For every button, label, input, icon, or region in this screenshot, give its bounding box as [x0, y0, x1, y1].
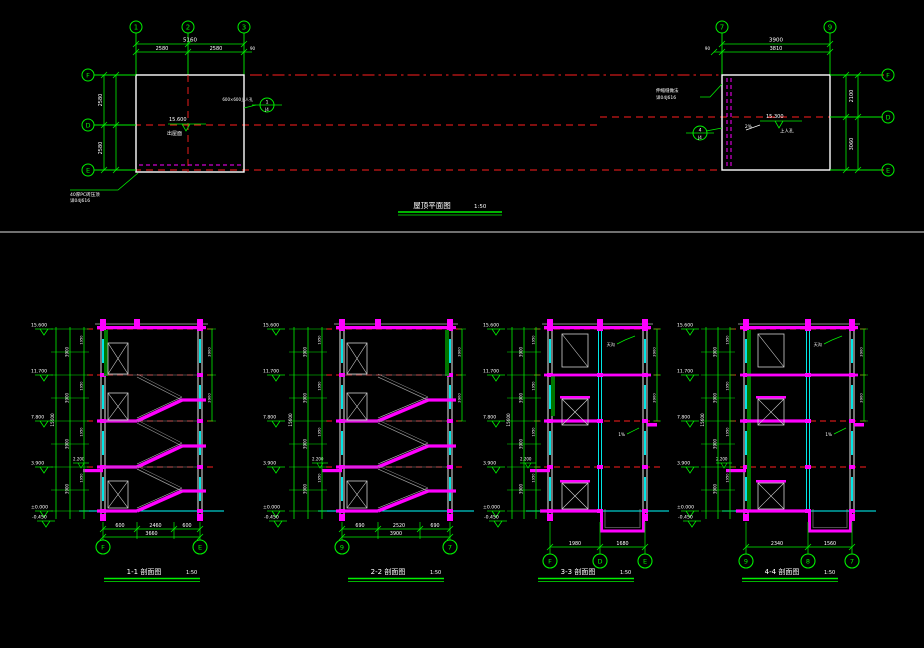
far-flight [137, 423, 182, 446]
elevation-value: 11.700 [483, 369, 499, 375]
dim-text: 2460 [149, 523, 161, 529]
grid-bubble-label: 3 [242, 24, 246, 32]
hatched-wall [445, 330, 449, 376]
elevation-value: ±0.000 [263, 505, 280, 511]
elevation-value: -0.450 [484, 515, 499, 521]
parapet-stub [642, 319, 648, 326]
far-flight [378, 377, 428, 400]
elevation-value: ±0.000 [677, 505, 694, 511]
level-value: 15.600 [169, 117, 187, 123]
dim-text: 3900 [65, 483, 70, 494]
level-value: 2.200 [520, 457, 532, 462]
far-flight [137, 466, 182, 488]
dim-text: 1950 [80, 473, 84, 483]
beam-section [849, 465, 855, 469]
dim-text: 2580 [98, 94, 104, 107]
far-flight [378, 423, 428, 446]
level-flag-triangle [775, 121, 783, 128]
detail-sheet: J4 [697, 135, 702, 140]
dim-text: 3900 [303, 392, 308, 403]
stair-nosing [378, 488, 428, 508]
dim-text: 90 [250, 46, 256, 51]
grid-bubble-label: 7 [720, 24, 724, 32]
dim-text: 2580 [156, 46, 169, 52]
level-flag-triangle [492, 329, 500, 335]
floor-slab [740, 374, 858, 377]
elevation-value: 7.800 [483, 415, 496, 421]
stair-nosing [378, 443, 428, 464]
grid-bubble-label: D [597, 557, 602, 565]
dim-text: 1560 [824, 541, 836, 547]
dim-text: 1950 [726, 381, 730, 391]
dim-text: 3900 [207, 393, 212, 403]
dim-text: 3900 [519, 483, 524, 494]
ledge [854, 423, 864, 427]
leader-note: 1% [825, 432, 832, 437]
detail-note: 600×600上人孔 [222, 96, 253, 102]
level-flag-triangle [40, 467, 48, 473]
dim-text: 1950 [318, 335, 322, 345]
dim-text: 3900 [519, 346, 524, 357]
dim-text: 1950 [726, 473, 730, 483]
leader-line [706, 128, 722, 131]
dim-text: 3900 [303, 346, 308, 357]
leader-line [700, 84, 722, 97]
stair-flight [378, 491, 428, 511]
door-header [560, 480, 590, 483]
dim-text: 1950 [318, 427, 322, 437]
level-flag-triangle [492, 375, 500, 381]
stair-landing [426, 444, 456, 447]
dim-text: 3900 [390, 531, 402, 537]
grid-bubble-label: 1 [134, 24, 138, 32]
far-flight [137, 374, 182, 397]
parapet-stub [339, 319, 345, 326]
stair-landing [426, 489, 456, 492]
drawing-title: 屋顶平面图 [413, 201, 451, 210]
grid-bubble-label: E [886, 167, 890, 175]
stair-nosing [137, 397, 182, 418]
dim-text: 15600 [288, 413, 293, 427]
far-flight [378, 466, 428, 488]
detail-number: 1 [266, 100, 269, 106]
leader-note: 详04J616 [656, 94, 676, 101]
parapet-stub [134, 319, 140, 326]
stair-nosing [137, 443, 182, 464]
dim-text: 5160 [183, 38, 197, 44]
dim-text: 1950 [532, 427, 536, 437]
dim-text: 3900 [519, 392, 524, 403]
far-flight [137, 469, 182, 491]
level-flag-triangle [272, 421, 280, 427]
elevation-value: 7.800 [31, 415, 44, 421]
level-flag-triangle [40, 421, 48, 427]
drawing-scale: 1:50 [474, 204, 487, 210]
grid-bubble-label: F [101, 543, 105, 551]
section-scale: 1:50 [620, 570, 631, 576]
section-title: 4-4 剖面图 [765, 567, 800, 576]
level-value: 2.200 [73, 457, 85, 462]
far-flight [378, 374, 428, 397]
level-flag-triangle [492, 421, 500, 427]
dim-text: 3900 [713, 483, 718, 494]
level-flag-triangle [688, 521, 696, 527]
wall-base [100, 514, 106, 521]
dim-text: 2340 [771, 541, 783, 547]
section-scale: 1:50 [186, 570, 197, 576]
beam-section [805, 327, 811, 331]
beam-section [642, 465, 648, 469]
level-flag-triangle [686, 467, 694, 473]
level-flag-triangle [40, 375, 48, 381]
wall-base [547, 514, 553, 521]
dim-text: 2100 [849, 90, 855, 103]
dim-text: 3900 [519, 438, 524, 449]
stair-flight [378, 446, 428, 467]
dim-text: 3900 [859, 393, 864, 403]
dim-text: 3900 [65, 392, 70, 403]
elevation-value: 7.800 [263, 415, 276, 421]
dim-text: 1950 [318, 381, 322, 391]
dim-text: 3900 [769, 38, 783, 44]
door-header [756, 480, 786, 483]
elevation-value: 3.900 [31, 461, 44, 467]
far-flight [378, 469, 428, 491]
parapet-stub [447, 319, 453, 326]
grid-bubble-label: 9 [828, 24, 832, 32]
dim-text: 600 [182, 523, 191, 529]
roof-plan: 1 2 3 5160 2580 2580 90 [70, 21, 894, 215]
grid-bubble-label: 9 [340, 543, 344, 551]
leader-note: 1% [618, 432, 625, 437]
stair-landing [180, 398, 206, 401]
dim-text: 1950 [532, 335, 536, 345]
dim-text: 1950 [80, 427, 84, 437]
leader-note: 详04J616 [70, 197, 90, 204]
window-swing [562, 334, 588, 367]
stair-sections: 2.20039003900390039001950195019501950156… [31, 319, 876, 582]
plan-title: 屋顶平面图 1:50 [398, 201, 502, 215]
dim-text: 1950 [532, 473, 536, 483]
level-flag-triangle [274, 521, 282, 527]
roof-plan-right: 7 9 3900 3810 90 F D E [656, 21, 894, 176]
far-flight [137, 420, 182, 443]
dim-text: 3900 [457, 347, 462, 357]
stair-flight [137, 446, 182, 467]
dim-text: 15600 [700, 413, 705, 427]
elevation-value: -0.450 [32, 515, 47, 521]
beam-section [547, 465, 553, 469]
plan-wall-outline [136, 75, 244, 172]
elevation-value: 11.700 [263, 369, 279, 375]
beam-section [597, 465, 603, 469]
leader-line [824, 336, 842, 344]
detail-sheet: J4 [264, 107, 269, 112]
dim-text: 1950 [532, 381, 536, 391]
grid-bubble-label: E [198, 543, 202, 551]
dim-text: 1950 [318, 473, 322, 483]
pit-inner [605, 509, 640, 528]
parapet-stub [805, 319, 811, 326]
level-flag-triangle [272, 375, 280, 381]
roof-slab [97, 326, 206, 329]
dim-text: 3900 [859, 347, 864, 357]
level-flag-triangle [494, 521, 502, 527]
parapet-stub [849, 319, 855, 326]
dim-text: 3900 [65, 346, 70, 357]
wall-base [339, 514, 345, 521]
beam-section [849, 419, 855, 423]
dim-text: 3900 [207, 347, 212, 357]
grid-bubble-label: 7 [448, 543, 452, 551]
level-flag-triangle [686, 329, 694, 335]
dim-text: 3660 [145, 531, 157, 537]
grid-bubble-label: 8 [806, 557, 810, 565]
dim-text: 2580 [98, 142, 104, 155]
dim-text: 90 [705, 46, 711, 51]
beam-section [597, 327, 603, 331]
parapet-stub [547, 319, 553, 326]
elevation-value: 11.700 [31, 369, 47, 375]
leader-note: 伸缩缝做法 [656, 87, 679, 94]
level-flag-triangle [492, 467, 500, 473]
dim-text: 3900 [652, 347, 657, 357]
grid-bubble-label: 9 [744, 557, 748, 565]
beam-section [642, 419, 648, 423]
elevation-value: ±0.000 [31, 505, 48, 511]
stair-nosing [378, 397, 428, 418]
hatched-wall [551, 376, 555, 416]
elevation-value: 15.600 [677, 323, 693, 329]
cad-svg: 1 2 3 5160 2580 2580 90 [0, 0, 924, 648]
detail-number: 4 [699, 128, 702, 134]
wall-base [197, 514, 203, 521]
leader-line [70, 173, 138, 190]
parapet-stub [375, 319, 381, 326]
entry-canopy [530, 469, 550, 472]
elevation-value: -0.450 [678, 515, 693, 521]
section-title: 3-3 剖面图 [561, 567, 596, 576]
floor-slab [740, 419, 808, 422]
section-scale: 1:50 [824, 570, 835, 576]
door-header [560, 396, 590, 399]
dim-text: 2580 [210, 46, 223, 52]
ledge [647, 423, 657, 427]
dim-text: 3810 [770, 46, 783, 52]
dim-text: 15600 [50, 413, 55, 427]
entry-canopy [726, 469, 746, 472]
dim-text: 2520 [393, 523, 405, 529]
elevation-value: 11.700 [677, 369, 693, 375]
stair-flight [137, 491, 182, 511]
dim-text: 3900 [713, 346, 718, 357]
section-scale: 1:50 [430, 570, 441, 576]
dim-text: 3900 [303, 438, 308, 449]
elevation-value: 3.900 [483, 461, 496, 467]
elevation-value: 7.800 [677, 415, 690, 421]
dim-text: 690 [430, 523, 439, 529]
elevation-value: 3.900 [263, 461, 276, 467]
cad-drawing-canvas: 1 2 3 5160 2580 2580 90 [0, 0, 924, 648]
parapet-stub [197, 319, 203, 326]
elevation-value: -0.450 [264, 515, 279, 521]
roof-slab [740, 326, 858, 329]
parapet-stub [597, 319, 603, 326]
wall-base [447, 514, 453, 521]
window-swing [758, 334, 784, 367]
floor-slab [544, 419, 600, 422]
level-flag-triangle [40, 329, 48, 335]
section-3-3: 天沟1%2.2003900390039003900195019501950195… [483, 319, 669, 582]
dim-text: 1980 [569, 541, 581, 547]
grid-bubble-label: D [85, 122, 90, 130]
section-title: 2-2 剖面图 [371, 567, 406, 576]
wall-base [743, 514, 749, 521]
ground-slab [736, 509, 808, 512]
elevation-value: ±0.000 [483, 505, 500, 511]
far-flight [137, 377, 182, 400]
stair-landing [180, 489, 206, 492]
roof-slab [336, 326, 456, 329]
level-flag-triangle [686, 421, 694, 427]
grid-bubble-label: 7 [850, 557, 854, 565]
leader-line [834, 428, 846, 434]
dim-text: 3900 [652, 393, 657, 403]
level-note: 上人孔 [780, 128, 794, 135]
leader-note: 40厚PC砖压顶 [70, 191, 100, 198]
level-flag-triangle [42, 521, 50, 527]
leader-note: 天沟 [607, 341, 615, 348]
grid-bubble-label: 2 [186, 24, 190, 32]
grid-bubble-label: F [86, 72, 90, 80]
ground-slab [540, 509, 600, 512]
slope-label: 2% [745, 124, 753, 130]
dim-text: 3900 [713, 438, 718, 449]
stair-nosing [137, 488, 182, 508]
elevation-value: 15.600 [483, 323, 499, 329]
beam-section [447, 509, 453, 513]
beam-section [197, 509, 203, 513]
parapet-stub [100, 319, 106, 326]
level-flag-triangle [272, 467, 280, 473]
section-2-2: 2.20039003900390039001950195019501950156… [263, 319, 474, 582]
stair-flight [137, 400, 182, 421]
dim-text: 3060 [849, 138, 855, 151]
entry-canopy [83, 469, 103, 472]
dim-text: 600 [115, 523, 124, 529]
level-flag-triangle [272, 329, 280, 335]
floor-slab [544, 374, 651, 377]
dim-text: 3900 [713, 392, 718, 403]
leader-line [617, 336, 635, 344]
beam-section [805, 465, 811, 469]
elevation-value: 3.900 [677, 461, 690, 467]
leader-note: 天沟 [814, 341, 822, 348]
dim-text: 1950 [80, 335, 84, 345]
dim-text: 3900 [303, 483, 308, 494]
stair-landing [180, 444, 206, 447]
level-flag-triangle [686, 375, 694, 381]
elevation-value: 15.600 [31, 323, 47, 329]
grid-bubble-label: D [885, 114, 890, 122]
grid-bubble-label: E [86, 167, 90, 175]
dim-text: 690 [355, 523, 364, 529]
roof-plan-left: 1 2 3 5160 2580 2580 90 [70, 21, 282, 204]
pit-inner [813, 509, 847, 528]
ground-slab [336, 509, 378, 512]
section-1-1: 2.20039003900390039001950195019501950156… [31, 319, 224, 582]
dim-text: 1680 [616, 541, 628, 547]
grid-bubble-label: F [548, 557, 552, 565]
dim-text: 15600 [506, 413, 511, 427]
stair-flight [378, 400, 428, 421]
far-flight [378, 420, 428, 443]
entry-canopy [322, 469, 342, 472]
elevation-value: 15.600 [263, 323, 279, 329]
section-title: 1-1 剖面图 [127, 567, 162, 576]
parapet-stub [743, 319, 749, 326]
hatched-wall [104, 330, 108, 376]
leader-line [244, 105, 256, 108]
leader-line [627, 428, 639, 434]
dim-text: 3900 [65, 438, 70, 449]
dim-text: 3900 [457, 393, 462, 403]
grid-bubble-label: F [886, 72, 890, 80]
stair-landing [426, 398, 456, 401]
dim-text: 1950 [726, 335, 730, 345]
door-header [756, 396, 786, 399]
grid-bubble-label: E [643, 557, 647, 565]
dim-text: 1950 [80, 381, 84, 391]
level-note: 出屋面 [167, 130, 182, 137]
section-4-4: 天沟1%2.2003900390039003900195019501950195… [677, 319, 876, 582]
dim-text: 1950 [726, 427, 730, 437]
level-value: 15.300 [766, 114, 784, 120]
ground-slab [97, 509, 137, 512]
